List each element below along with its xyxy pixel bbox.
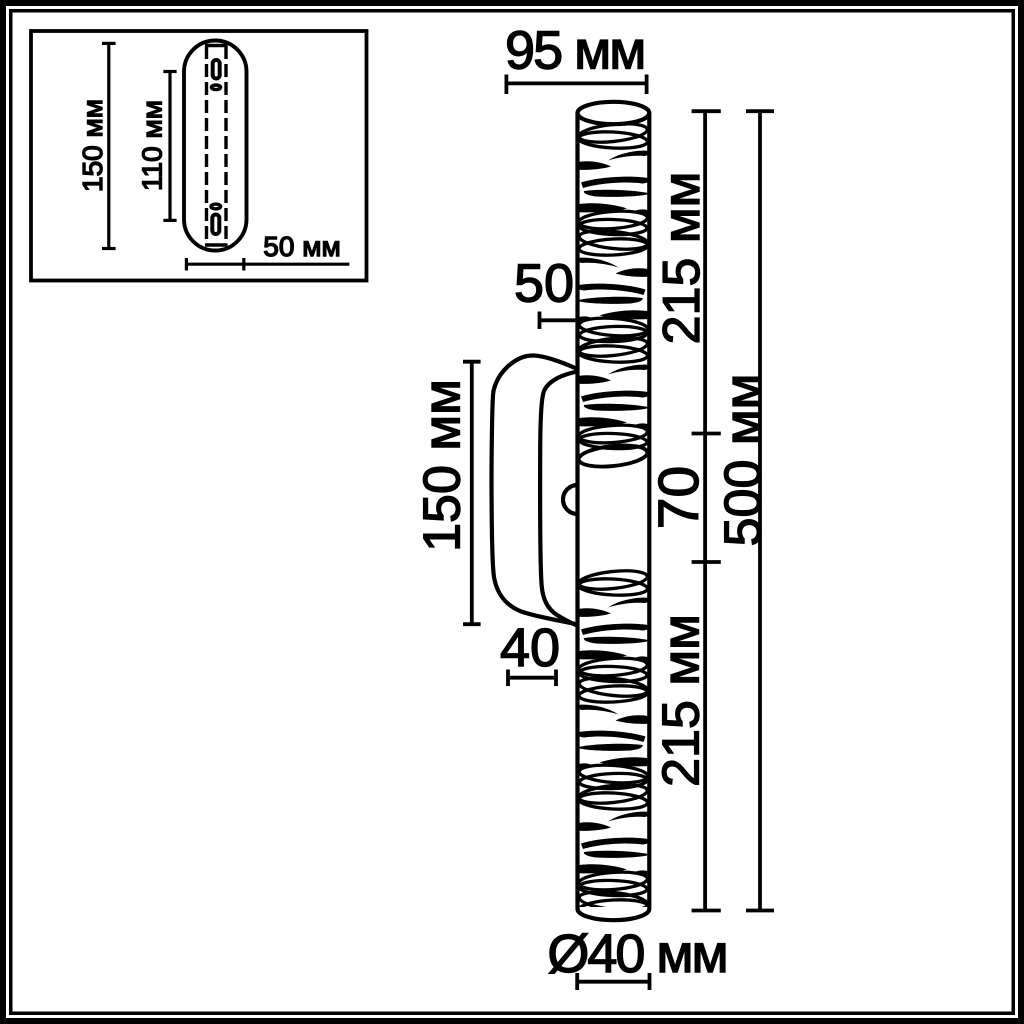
svg-text:150 мм: 150 мм: [77, 99, 108, 192]
svg-text:110 мм: 110 мм: [137, 100, 168, 191]
svg-text:95 мм: 95 мм: [505, 21, 644, 81]
svg-text:215 мм: 215 мм: [653, 614, 711, 787]
svg-text:215 мм: 215 мм: [653, 172, 711, 345]
svg-text:500 мм: 500 мм: [715, 374, 773, 547]
svg-text:50 мм: 50 мм: [263, 231, 340, 262]
svg-text:70: 70: [647, 466, 711, 529]
svg-text:50: 50: [514, 254, 574, 314]
svg-text:40: 40: [500, 618, 560, 678]
svg-text:150 мм: 150 мм: [414, 379, 472, 552]
svg-text:Ø40 мм: Ø40 мм: [547, 924, 726, 984]
